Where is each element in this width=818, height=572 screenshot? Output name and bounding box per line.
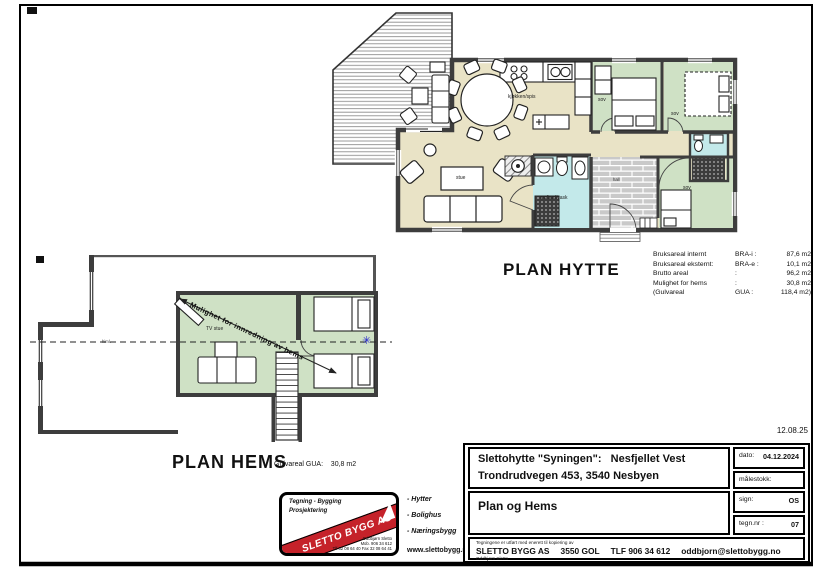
registration-mark-icon (27, 7, 37, 14)
scale-cell: målestokk: (733, 471, 805, 489)
deck-sliding-door (406, 128, 442, 133)
label-tv-room: TV stue (206, 327, 223, 332)
scale-label: målestokk: (739, 476, 771, 483)
company-city: 3550 GOL (561, 546, 600, 556)
company-email: oddbjorn@slettobygg.no (681, 546, 780, 556)
company-footer-cell: Tegningene er utført med enerett til kop… (468, 537, 805, 560)
area-row: Bruksareal eksternt:BRA-e :10,1 m2 (653, 260, 811, 270)
area-row: Bruksareal interntBRA-i :87,6 m2 (653, 250, 811, 260)
label-living: stue (456, 176, 465, 181)
company-person: Oddbjørn Sletto (476, 556, 803, 561)
sign-cell: sign: OS (733, 491, 805, 513)
print-date: 12.08.25 (738, 427, 808, 435)
company-name: SLETTO BYGG AS (476, 546, 550, 556)
logo-line2: Prosjektering (289, 508, 327, 514)
date-label: dato: (739, 452, 754, 459)
plan-hems-title: PLAN HEMS (172, 453, 287, 471)
title-block: Slettohytte "Syningen": Nesfjellet Vest … (463, 443, 810, 563)
project-line2: Trondrudvegen 453, 3540 Nesbyen (478, 470, 728, 482)
area-row: Brutto areal:96,2 m2 (653, 269, 811, 279)
label-bedroom-2: sov (671, 112, 679, 117)
sign-value: OS (789, 496, 799, 505)
logo-contact: Oddbjørn Sletto Mob. 906 34 612 Tlf 32 0… (333, 536, 392, 551)
company-phone: TLF 906 34 612 (611, 546, 671, 556)
date-cell: dato: 04.12.2024 (733, 447, 805, 469)
label-ceiling-note: himl. (102, 340, 111, 344)
label-bedroom-3: sov (683, 186, 691, 191)
drawing-number-value: 07 (791, 520, 799, 529)
copyright-note: Tegningene er utført med enerett til kop… (476, 540, 803, 545)
plan-hems-area-note: Gulvareal GUA: 30,8 m2 (274, 461, 356, 468)
hems-partition-wall (296, 293, 301, 340)
wood-stove (505, 156, 531, 176)
project-line1: Slettohytte "Syningen": Nesfjellet Vest (478, 453, 728, 465)
logo-box: Tegning - Bygging Prosjektering SLETTO B… (279, 492, 399, 556)
logo-website: www.slettobygg.no (407, 547, 471, 554)
hall-brick-floor (592, 157, 657, 228)
logo-services: - Hytter - Bolighus - Næringsbygg (407, 496, 456, 544)
area-table: Bruksareal interntBRA-i :87,6 m2 Bruksar… (653, 250, 811, 298)
drawing-number-cell: tegn.nr : 07 (733, 515, 805, 535)
shower-small (692, 157, 725, 182)
drawing-title-cell: Plan og Hems (468, 491, 730, 535)
drawing-sheet: PLAN HYTTE Bruksareal interntBRA-i :87,6… (0, 0, 818, 572)
staircase (272, 352, 303, 442)
label-bath: wc/bad/vask (540, 196, 568, 201)
entry-steps (600, 233, 640, 242)
area-row: (GulvarealGUA :118,4 m2) (653, 288, 811, 298)
drawing-number-label: tegn.nr : (739, 520, 764, 527)
date-value: 04.12.2024 (763, 452, 799, 461)
label-kitchen: kjøkken/spis (508, 95, 536, 100)
area-row: Mulighet for hems:30,8 m2 (653, 279, 811, 289)
plan-hytte (333, 13, 738, 242)
hems-outline-windows (38, 272, 93, 406)
star-marker-icon: ✳ (362, 336, 371, 347)
registration-mark-icon (36, 256, 44, 263)
logo-line1: Tegning - Bygging (289, 499, 341, 505)
label-hall: hall (613, 178, 620, 182)
plan-hems (30, 255, 392, 442)
company-logo: Tegning - Bygging Prosjektering SLETTO B… (279, 490, 461, 560)
plan-hytte-title: PLAN HYTTE (503, 261, 620, 278)
label-bedroom-1: sov (598, 98, 606, 103)
company-line: SLETTO BYGG AS 3550 GOL TLF 906 34 612 o… (476, 546, 803, 556)
sign-label: sign: (739, 496, 753, 503)
project-info-cell: Slettohytte "Syningen": Nesfjellet Vest … (468, 447, 730, 489)
